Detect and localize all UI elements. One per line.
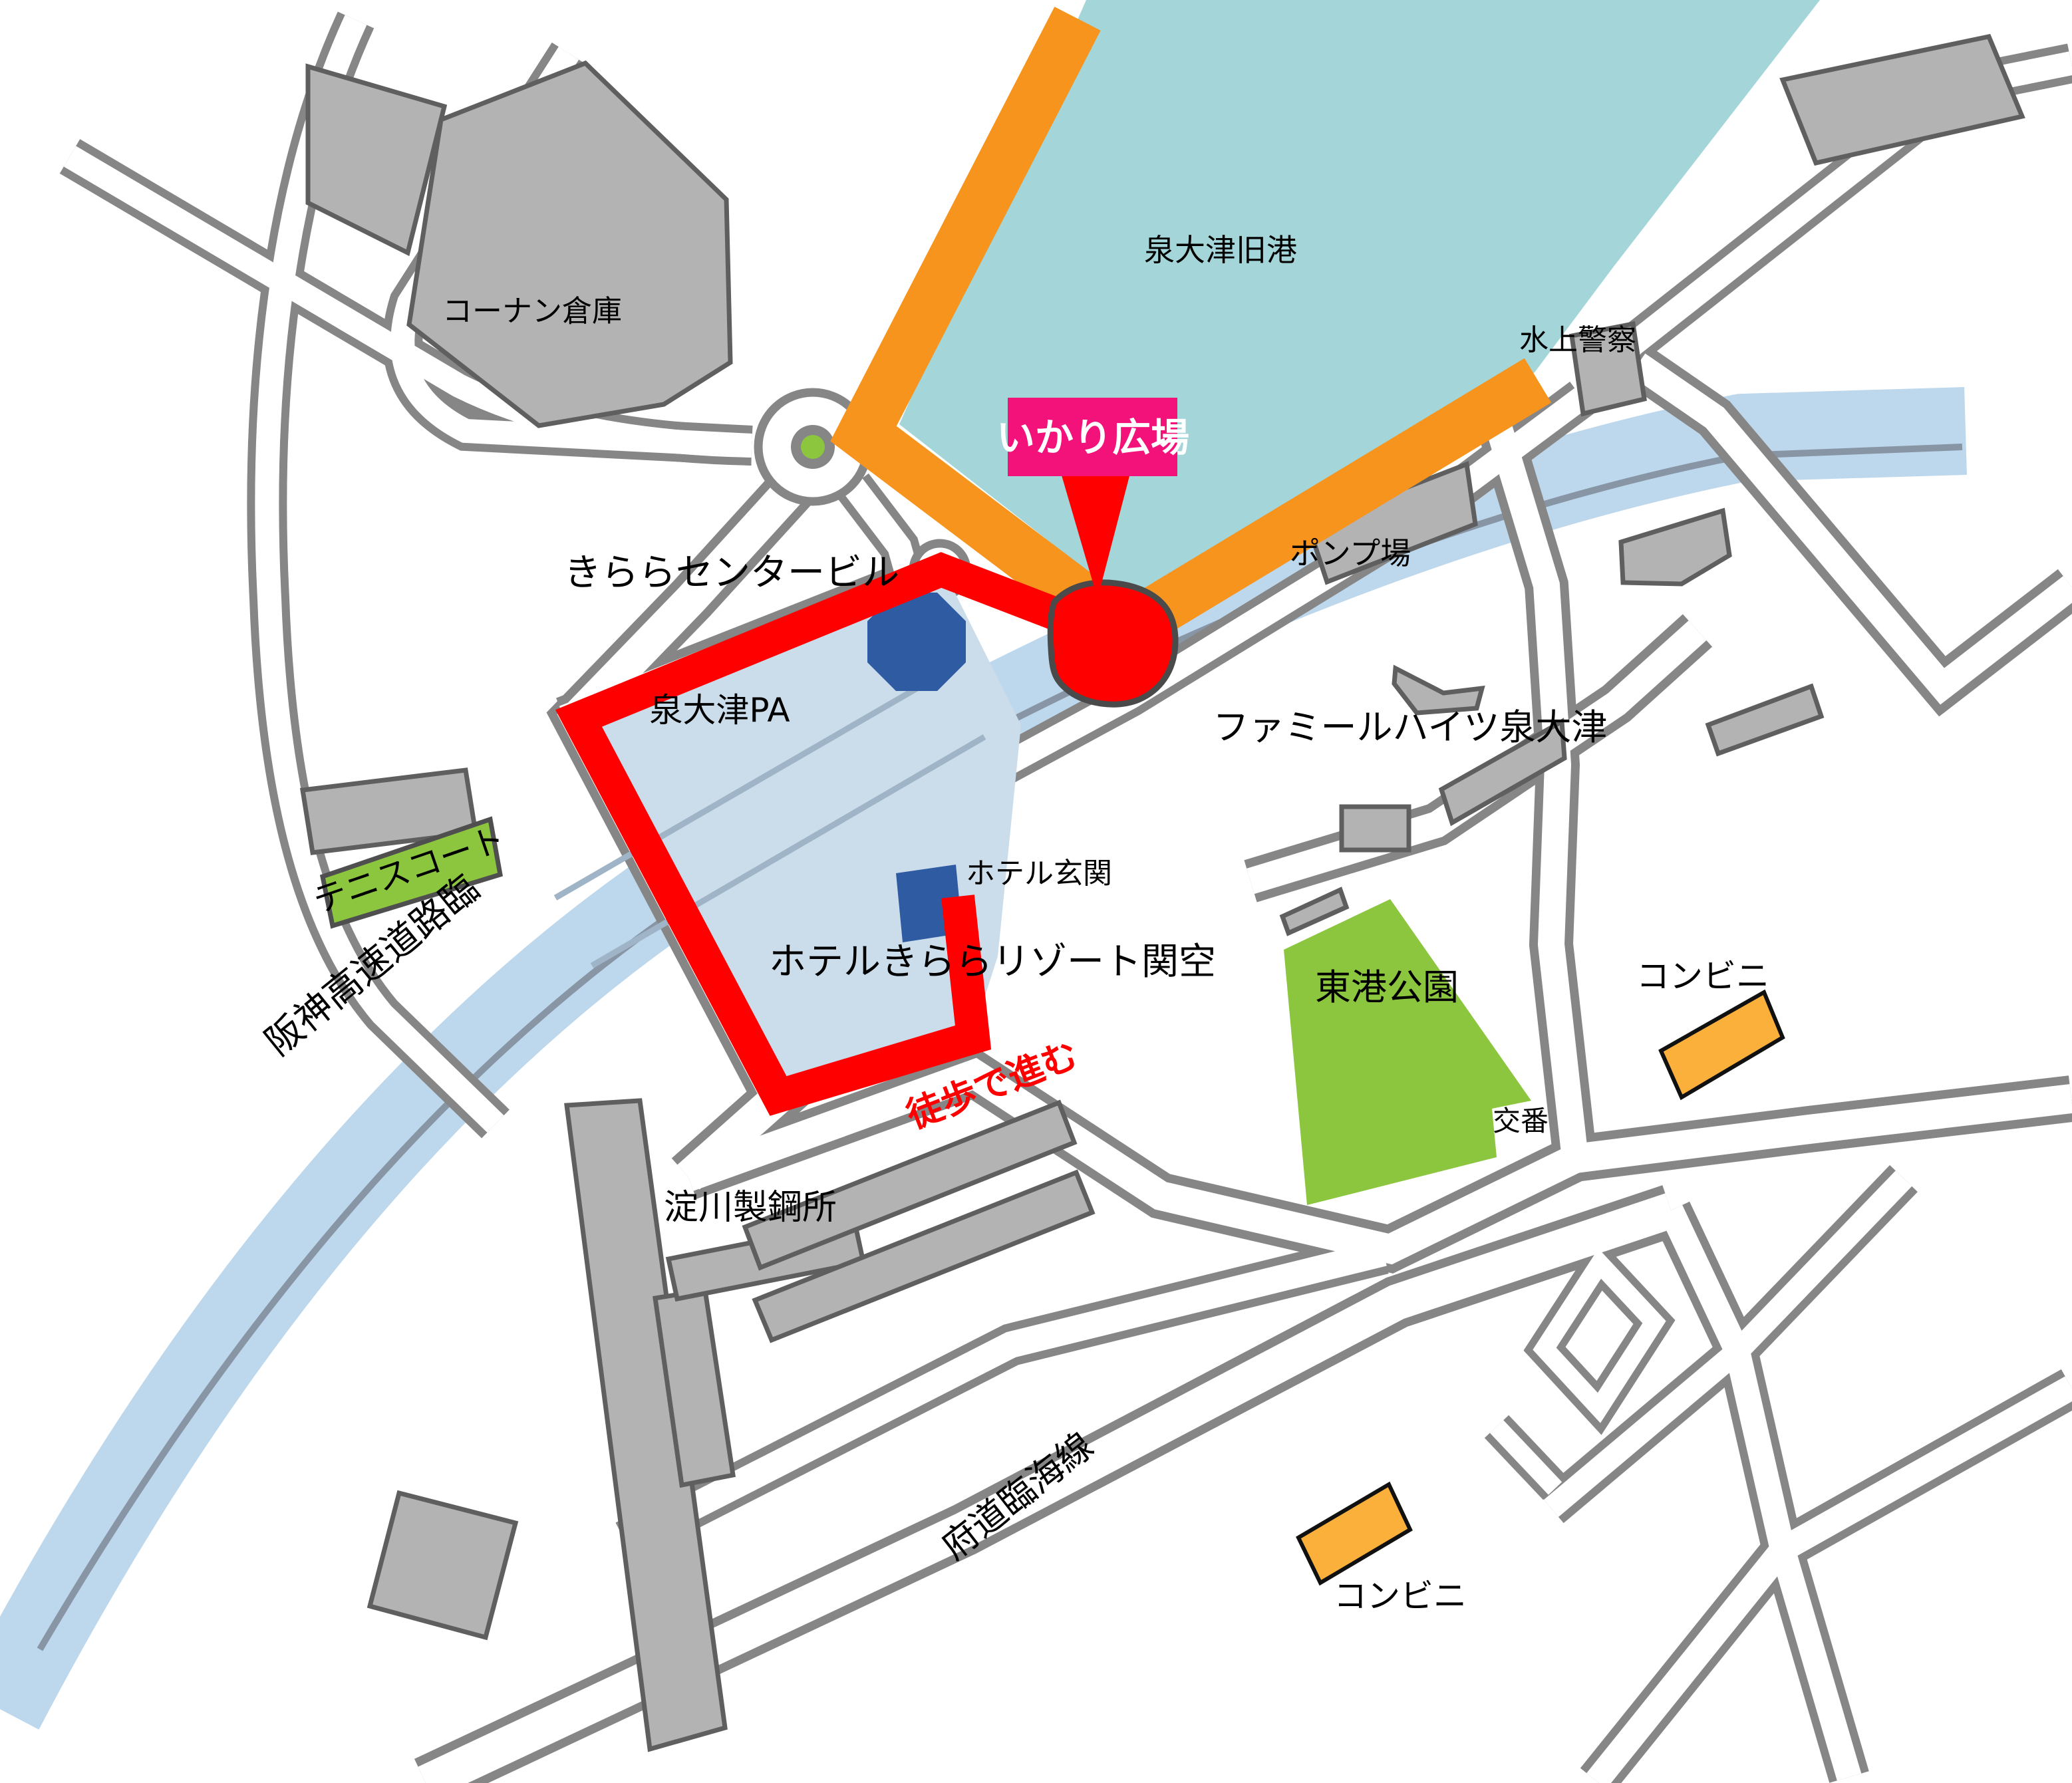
map-canvas: いかり広場 泉大津旧港 コーナン倉庫 水上警察 ポンプ場 きららセンタービル 泉… <box>0 0 2072 1783</box>
izumiotsu-pa-label: 泉大津PA <box>649 691 790 730</box>
northeast-building <box>1783 37 2022 163</box>
ikari-plaza-spot <box>1050 583 1175 704</box>
convenience-bottom-label: コンビニ <box>1334 1577 1467 1615</box>
convenience-store-right <box>1661 992 1783 1097</box>
southwest-building <box>370 1493 516 1637</box>
higashiko-park-area <box>1284 899 1531 1205</box>
convenience-store-bottom <box>1298 1484 1410 1583</box>
east-building-2 <box>1708 686 1821 754</box>
ikari-plaza-banner-label: いかり広場 <box>996 415 1189 460</box>
yodogawa-steel-label: 淀川製鋼所 <box>664 1188 837 1228</box>
pump-station-label: ポンプ場 <box>1290 535 1411 571</box>
higashiko-park-label: 東港公園 <box>1315 966 1459 1008</box>
roundabout-green-island <box>801 435 825 459</box>
famille-building-3 <box>1342 807 1409 850</box>
famille-heights-label: ファミールハイツ泉大津 <box>1213 706 1608 748</box>
route-map-izumiotsu: いかり広場 泉大津旧港 コーナン倉庫 水上警察 ポンプ場 きららセンタービル 泉… <box>0 0 2072 1783</box>
kirara-center-label: きららセンタービル <box>564 551 899 595</box>
famille-road-casing <box>1251 630 1698 881</box>
koban-label: 交番 <box>1493 1105 1549 1137</box>
water-police-label: 水上警察 <box>1519 323 1636 357</box>
east-building-1 <box>1621 511 1729 584</box>
konan-warehouse-label: コーナン倉庫 <box>442 293 622 329</box>
harbor-label: 泉大津旧港 <box>1144 232 1297 268</box>
convenience-right-label: コンビニ <box>1636 957 1769 996</box>
southeast-road <box>1671 1210 1849 1777</box>
hotel-kirara-label: ホテルきららリゾート関空 <box>769 940 1216 984</box>
hotel-entrance-label: ホテル玄関 <box>966 857 1112 891</box>
